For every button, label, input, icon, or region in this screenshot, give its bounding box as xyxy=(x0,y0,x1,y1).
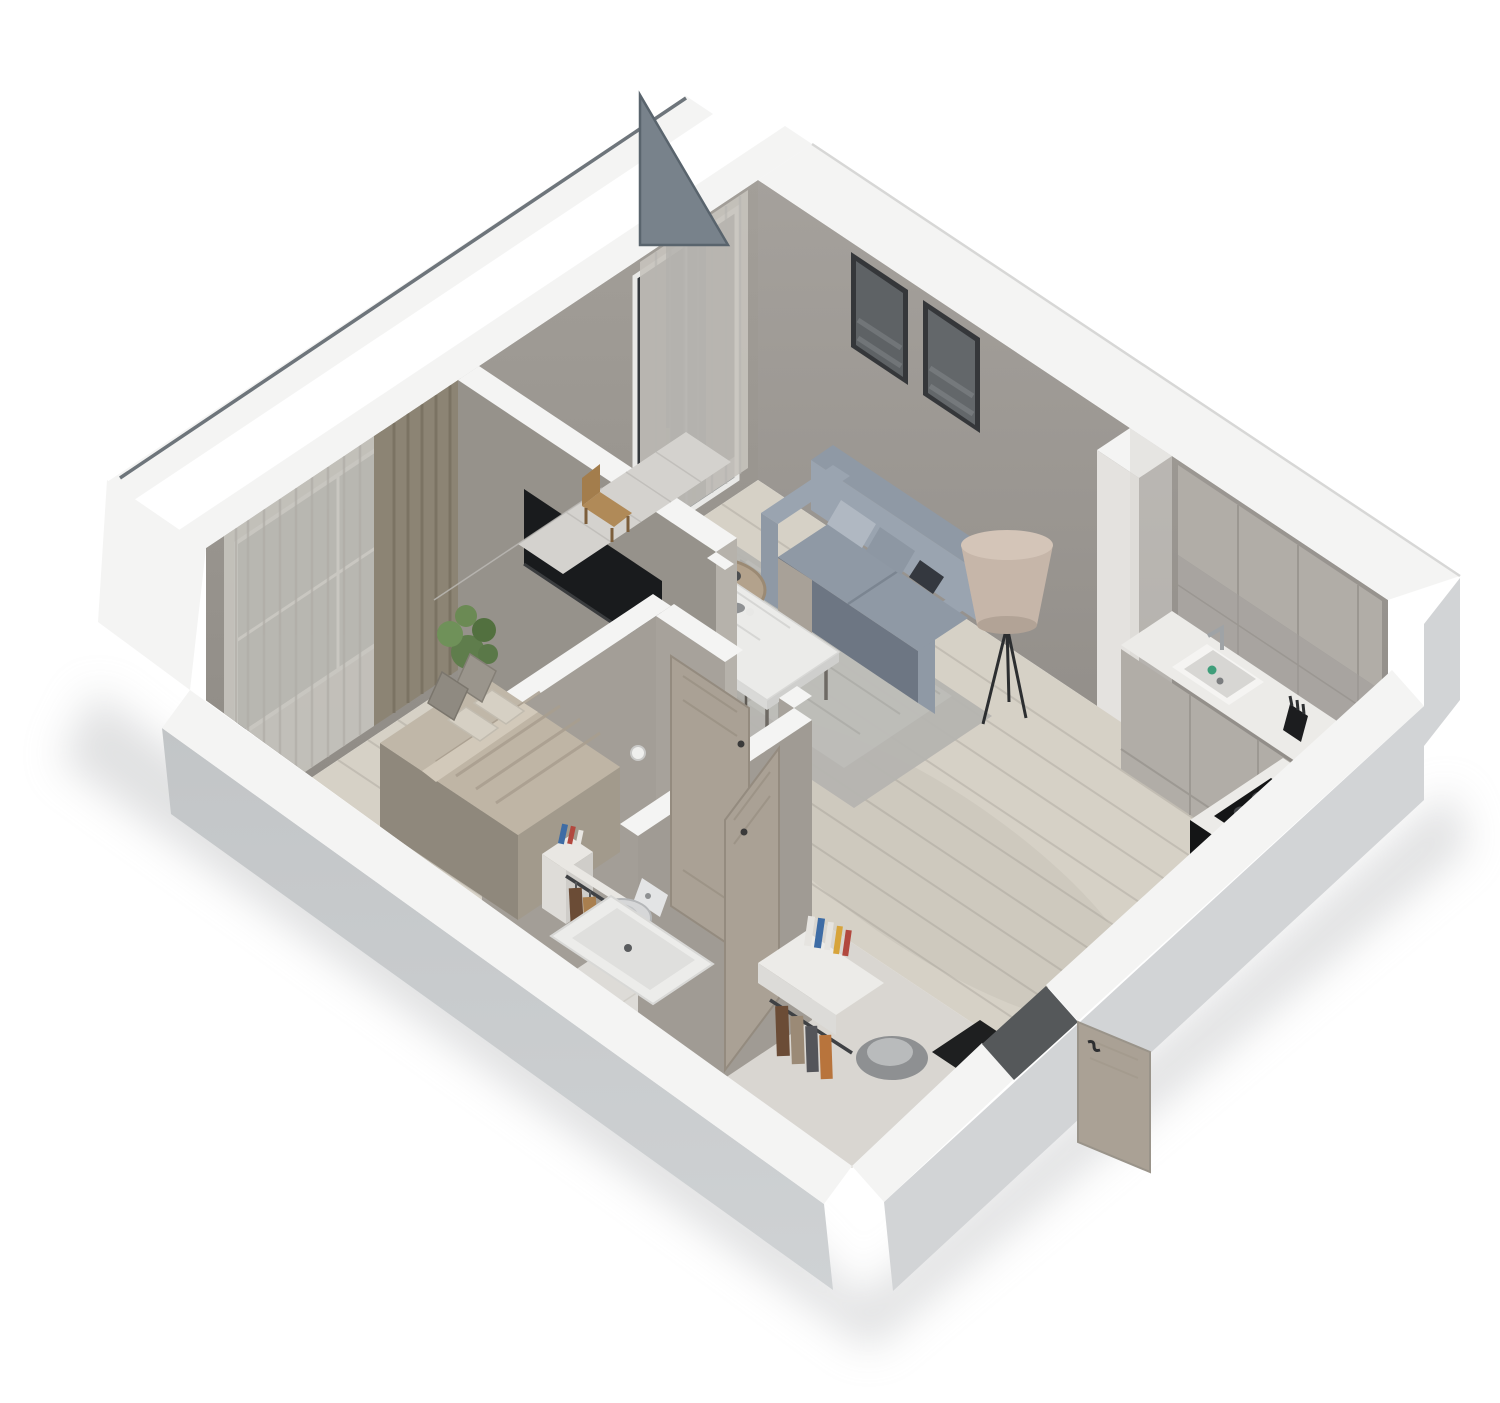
right-exterior-face xyxy=(1424,578,1460,746)
chair-seat xyxy=(867,1038,913,1066)
garment xyxy=(775,1006,790,1056)
floorplan-stage: 3D isometric cutaway floor plan of a one… xyxy=(0,0,1500,1403)
lamp-shade-top xyxy=(961,530,1053,560)
garment xyxy=(805,1026,819,1072)
sink-soap xyxy=(1208,666,1217,675)
door-handle xyxy=(738,741,745,748)
tub-drain xyxy=(624,944,632,952)
foliage xyxy=(437,621,463,647)
curved-chair xyxy=(856,1036,928,1080)
apartment-interior xyxy=(206,180,1388,1268)
toilet-paper-roll xyxy=(631,746,645,760)
door-handle xyxy=(741,829,748,836)
foliage xyxy=(455,605,477,627)
lamp-shade-bottom xyxy=(977,616,1037,634)
foliage xyxy=(472,618,496,642)
cup xyxy=(746,608,754,616)
sink-drain xyxy=(1217,678,1224,685)
garment xyxy=(790,1016,805,1064)
flush-button xyxy=(645,893,651,899)
dark-curtain xyxy=(374,378,461,726)
band-left-bridge xyxy=(98,480,206,690)
garment xyxy=(819,1035,833,1079)
floorplan-render xyxy=(0,0,1500,1403)
